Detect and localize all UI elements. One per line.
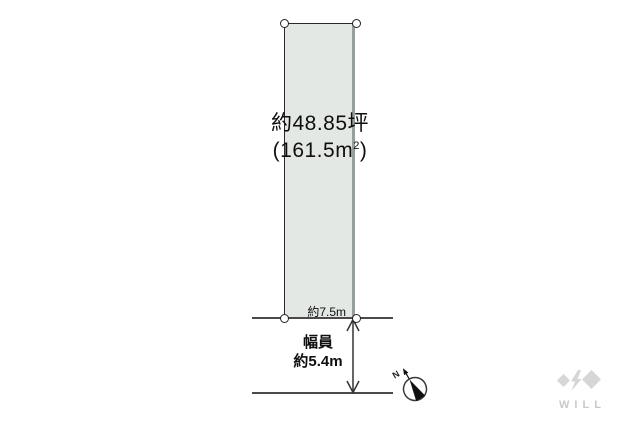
will-logo-text: WILL bbox=[552, 400, 608, 411]
area-square-meters: (161.5m2) bbox=[230, 137, 410, 164]
will-logo: WILL bbox=[552, 369, 608, 411]
land-plot-diagram: 約48.85坪 (161.5m2) 約7.5m 幅員 約5.4m N WIL bbox=[0, 0, 640, 427]
will-logo-mark bbox=[552, 369, 608, 392]
area-label: 約48.85坪 (161.5m2) bbox=[230, 110, 410, 164]
road-edge-line-far bbox=[252, 392, 393, 394]
vertex-marker-top-right bbox=[352, 19, 361, 28]
north-label: N bbox=[391, 369, 401, 381]
vertex-marker-top-left bbox=[280, 19, 289, 28]
north-compass-icon: N bbox=[391, 359, 437, 409]
vertex-marker-bottom-left bbox=[280, 314, 289, 323]
area-tsubo: 約48.85坪 bbox=[230, 110, 410, 137]
land-parcel-shape bbox=[284, 23, 355, 319]
road-width-arrow bbox=[345, 318, 361, 394]
superscript-two: 2 bbox=[353, 140, 360, 152]
vertex-marker-bottom-right bbox=[352, 314, 361, 323]
